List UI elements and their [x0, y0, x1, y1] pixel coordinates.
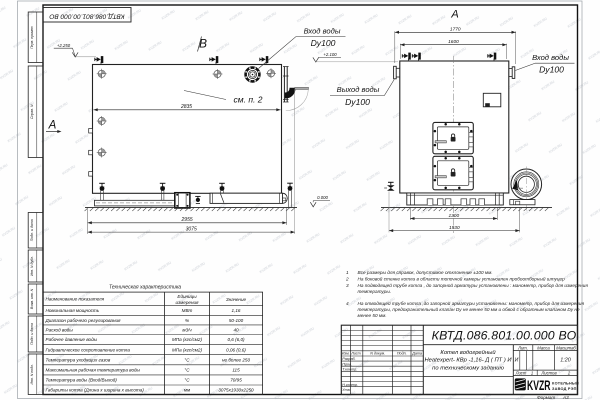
- svg-text:КВТД.086.801.00.000 ВО: КВТД.086.801.00.000 ВО: [432, 329, 577, 343]
- svg-text:°С: °С: [184, 368, 190, 373]
- svg-text:1300: 1300: [448, 213, 459, 219]
- svg-text:Н.контр.: Н.контр.: [342, 383, 358, 387]
- svg-text:40: 40: [233, 327, 239, 332]
- svg-text:Утв.: Утв.: [342, 388, 350, 392]
- svg-text:Единицы: Единицы: [177, 294, 197, 299]
- svg-text:Температура уходящих газов: Температура уходящих газов: [46, 357, 111, 362]
- svg-text:Рабочее давление воды: Рабочее давление воды: [46, 337, 98, 342]
- svg-text:Номинальная мощность: Номинальная мощность: [46, 308, 100, 313]
- svg-text:Пров.: Пров.: [342, 362, 352, 366]
- svg-text:%: %: [185, 318, 189, 323]
- svg-text:Подп. и дата: Подп. и дата: [30, 323, 34, 345]
- svg-text:1,16: 1,16: [232, 308, 241, 313]
- svg-text:А: А: [450, 9, 458, 21]
- svg-text:менее 50 мм.: менее 50 мм.: [358, 313, 387, 318]
- svg-text:0.000: 0.000: [317, 195, 328, 200]
- svg-text:N докум.: N докум.: [370, 352, 385, 356]
- svg-text:Справ. N: Справ. N: [30, 104, 34, 119]
- svg-text:КВТД.086.801.00.000 ВО: КВТД.086.801.00.000 ВО: [49, 13, 124, 20]
- svg-text:2955: 2955: [181, 217, 193, 223]
- svg-text:КОТЕЛЬНЫЙ: КОТЕЛЬНЫЙ: [552, 382, 579, 386]
- svg-text:KVZR: KVZR: [527, 378, 551, 393]
- svg-text:мм: мм: [184, 387, 191, 392]
- svg-text:И: И: [515, 358, 519, 364]
- svg-text:Расход воды: Расход воды: [46, 327, 74, 332]
- svg-text:50-100: 50-100: [229, 318, 244, 323]
- svg-text:Лист: Лист: [515, 371, 527, 376]
- svg-text:1: 1: [346, 270, 349, 275]
- svg-text:Масса: Масса: [537, 345, 550, 350]
- svg-text:На боковой стенке котла в обла: На боковой стенке котла в области топочн…: [358, 275, 566, 281]
- svg-text:Heatexpert- КВр -1,16- Д ( ПТ: Heatexpert- КВр -1,16- Д ( ПТ ) И: [424, 358, 512, 364]
- svg-text:Температура воды (Вход/Выход): Температура воды (Вход/Выход): [46, 378, 118, 383]
- svg-text:Лист: Лист: [350, 352, 361, 356]
- svg-text:Dy100: Dy100: [311, 38, 336, 48]
- svg-text:Вход воды: Вход воды: [532, 53, 569, 62]
- svg-text:Все размеры для справок, допус: Все размеры для справок, допустимое откл…: [358, 270, 493, 275]
- svg-text:Листов: Листов: [540, 371, 557, 376]
- svg-text:В: В: [199, 37, 207, 51]
- svg-text:температуры.: температуры.: [358, 289, 392, 294]
- svg-text:1930: 1930: [449, 225, 460, 231]
- svg-text:70/95: 70/95: [230, 378, 242, 383]
- svg-text:Масштаб: Масштаб: [556, 345, 576, 350]
- svg-text:Инв. N дубл.: Инв. N дубл.: [30, 256, 34, 276]
- svg-text:Котел водогрейный: Котел водогрейный: [440, 349, 496, 356]
- svg-text:Гидравлическое сопротивление к: Гидравлическое сопротивление котла: [46, 347, 131, 352]
- svg-text:Габариты котла (Длина х ширина: Габариты котла (Длина х ширина х высота): [46, 387, 145, 392]
- svg-text:Техническая характеристика: Техническая характеристика: [109, 285, 181, 291]
- svg-text:МВт: МВт: [182, 308, 193, 313]
- svg-text:2: 2: [345, 276, 349, 281]
- svg-text:Т.контр.: Т.контр.: [342, 367, 357, 371]
- svg-text:Дата: Дата: [411, 352, 422, 356]
- svg-text:Вход воды: Вход воды: [304, 27, 341, 36]
- svg-text:4: 4: [346, 301, 349, 306]
- svg-text:м3/ч: м3/ч: [182, 327, 192, 332]
- svg-text:Лит.: Лит.: [517, 345, 528, 350]
- svg-text:Инв. N подл.: Инв. N подл.: [30, 364, 34, 384]
- svg-text:1:20: 1:20: [560, 358, 571, 364]
- svg-text:МПа (кгс/см2): МПа (кгс/см2): [172, 347, 202, 352]
- svg-text:А3: А3: [562, 395, 569, 400]
- svg-text:1600: 1600: [448, 39, 459, 45]
- svg-text:0,06 (0,6): 0,06 (0,6): [226, 347, 246, 352]
- svg-text:температуры, предохранительный: температуры, предохранительный клапан Dy…: [358, 306, 580, 312]
- svg-text:Dy100: Dy100: [345, 97, 370, 107]
- svg-text:по техническому заданию: по техническому заданию: [432, 365, 504, 371]
- svg-text:Значение: Значение: [226, 297, 247, 302]
- svg-text:Подп. и дата: Подп. и дата: [30, 219, 34, 241]
- svg-text:1770: 1770: [450, 27, 461, 33]
- svg-text:см. п. 2: см. п. 2: [234, 95, 263, 105]
- svg-text:Диапазон рабочего регулировани: Диапазон рабочего регулирования: [45, 318, 122, 323]
- svg-text:Формат: Формат: [537, 395, 555, 400]
- svg-text:°С: °С: [184, 357, 190, 362]
- svg-text:Перв. примен.: Перв. примен.: [30, 26, 34, 49]
- svg-text:ЗАВОД РЭП: ЗАВОД РЭП: [552, 387, 577, 391]
- svg-text:3075х1930х2250: 3075х1930х2250: [218, 387, 254, 392]
- svg-text:Наименование показателя: Наименование показателя: [46, 297, 105, 302]
- svg-text:измерения: измерения: [176, 300, 200, 305]
- svg-text:А: А: [48, 120, 57, 132]
- svg-text:Максимальная рабочая температу: Максимальная рабочая температура воды: [46, 368, 141, 373]
- svg-text:Подп.: Подп.: [397, 352, 407, 356]
- svg-text:На отводящей трубе котла ,до з: На отводящей трубе котла ,до запорной ар…: [358, 300, 585, 306]
- svg-text:3075: 3075: [186, 227, 197, 233]
- svg-text:Разраб.: Разраб.: [342, 357, 355, 361]
- svg-text:МПа (кгс/см2): МПа (кгс/см2): [172, 337, 202, 342]
- svg-text:0,6 (6,0): 0,6 (6,0): [227, 337, 245, 342]
- svg-text:1: 1: [531, 371, 533, 376]
- svg-text:Изм.: Изм.: [342, 352, 350, 356]
- svg-text:На подводящей трубе котла , д: На подводящей трубе котла , до запорной …: [358, 282, 589, 288]
- svg-text:Dy100: Dy100: [539, 65, 564, 75]
- svg-text:115: 115: [232, 368, 240, 373]
- svg-text:2835: 2835: [180, 104, 192, 110]
- svg-text:°С: °С: [184, 378, 190, 383]
- svg-text:3: 3: [346, 283, 349, 288]
- svg-text:не более 250: не более 250: [222, 357, 250, 362]
- svg-text:+2.250: +2.250: [57, 43, 71, 48]
- svg-text:+2.100: +2.100: [323, 52, 337, 57]
- svg-text:Взам. инв. N: Взам. инв. N: [30, 288, 34, 309]
- svg-text:Выход воды: Выход воды: [337, 85, 380, 94]
